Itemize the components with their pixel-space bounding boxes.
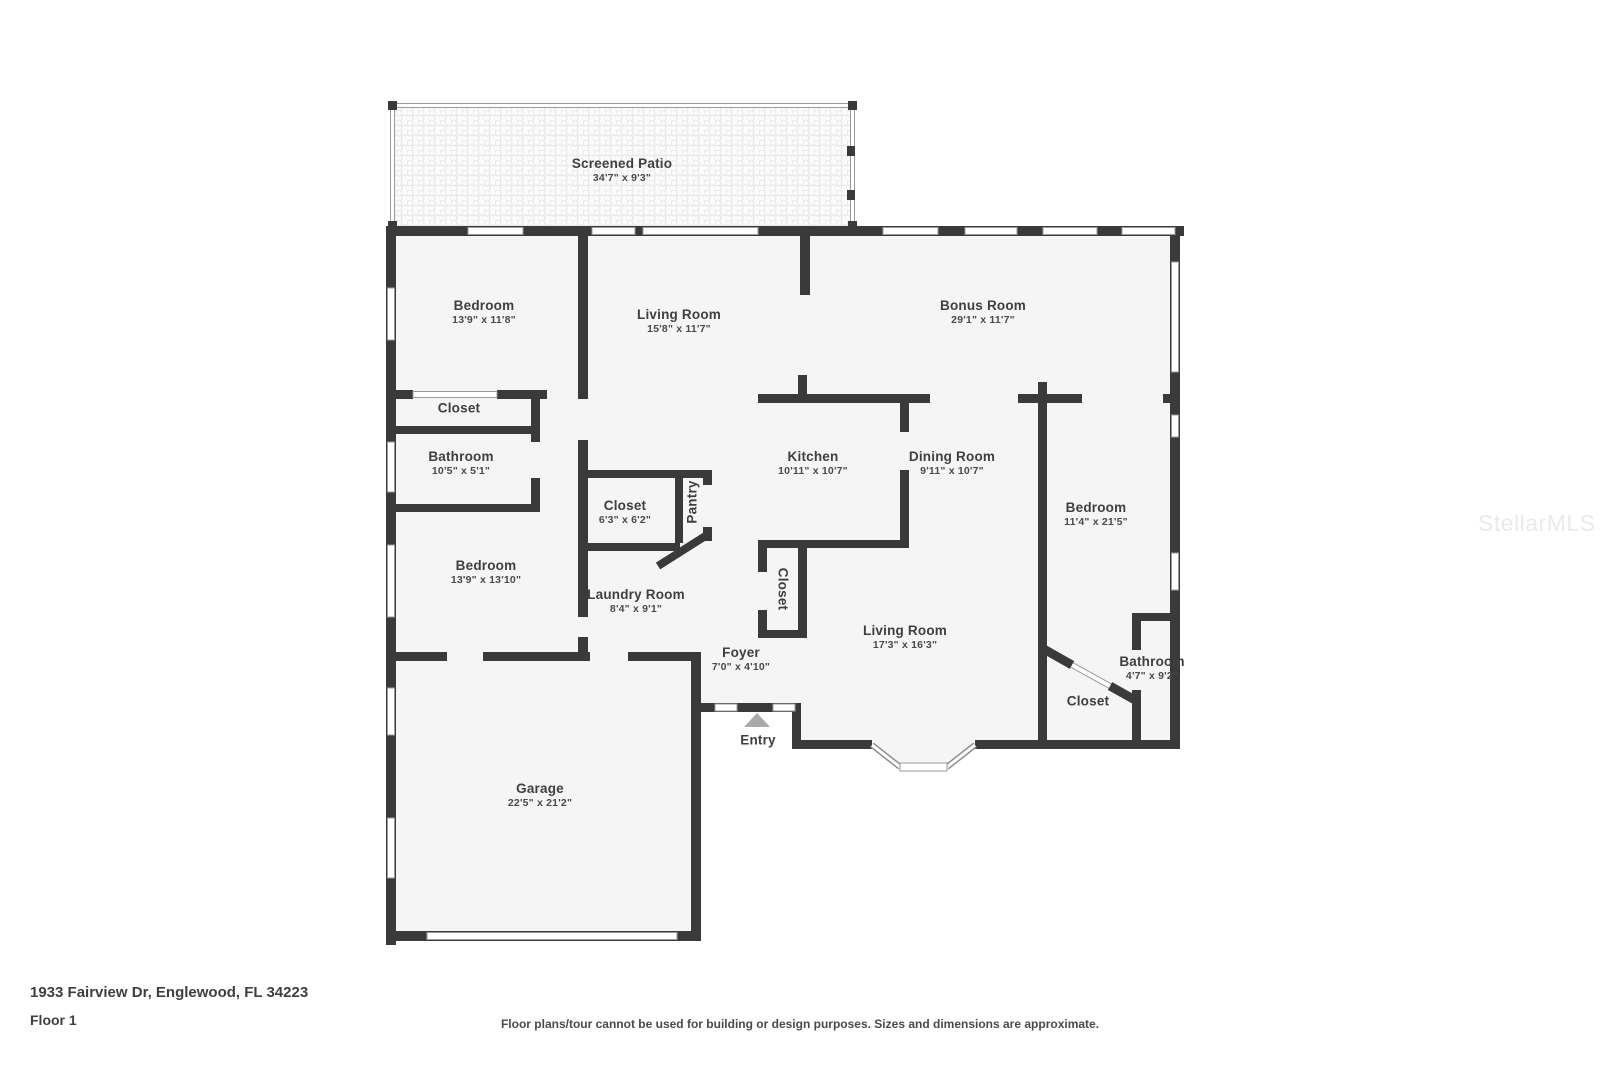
room-label-screened-patio: Screened Patio 34'7" x 9'3" [572,156,672,184]
room-label-laundry-room: Laundry Room 8'4" x 9'1" [587,587,685,615]
room-label-living-room-main: Living Room 17'3" x 16'3" [863,623,947,651]
room-label-pantry: Pantry [685,480,700,523]
room-label-closet-back: Closet [1067,694,1109,709]
room-label-kitchen: Kitchen 10'11" x 10'7" [778,449,848,477]
floor-number-label: Floor 1 [30,1012,77,1028]
room-label-living-room-top: Living Room 15'8" x 11'7" [637,307,721,335]
room-label-bedroom-left: Bedroom 13'9" x 13'10" [451,558,521,586]
room-label-garage: Garage 22'5" x 21'2" [508,781,572,809]
room-label-closet-mid: Closet 6'3" x 6'2" [599,498,651,526]
room-label-dining-room: Dining Room 9'11" x 10'7" [909,449,995,477]
room-label-entry: Entry [740,733,776,748]
room-label-bathroom-right: Bathroom 4'7" x 9'2" [1119,654,1184,682]
room-label-foyer: Foyer 7'0" x 4'10" [712,645,770,673]
room-label-bathroom-left: Bathroom 10'5" x 5'1" [428,449,493,477]
property-address: 1933 Fairview Dr, Englewood, FL 34223 [30,984,308,1001]
room-label-closet-foyer: Closet [776,568,791,610]
stellar-mls-watermark: StellarMLS [1478,510,1595,537]
room-label-bonus-room: Bonus Room 29'1" x 11'7" [940,298,1026,326]
entry-arrow-icon [744,713,770,727]
floor-plan-page: Screened Patio 34'7" x 9'3" Bedroom 13'9… [0,0,1600,1066]
room-label-bedroom-right: Bedroom 11'4" x 21'5" [1064,500,1128,528]
floor-plan-drawing [0,0,1600,1066]
room-label-bedroom-top-left: Bedroom 13'9" x 11'8" [452,298,516,326]
disclaimer-text: Floor plans/tour cannot be used for buil… [501,1017,1099,1031]
room-label-closet-hall: Closet [438,401,480,416]
